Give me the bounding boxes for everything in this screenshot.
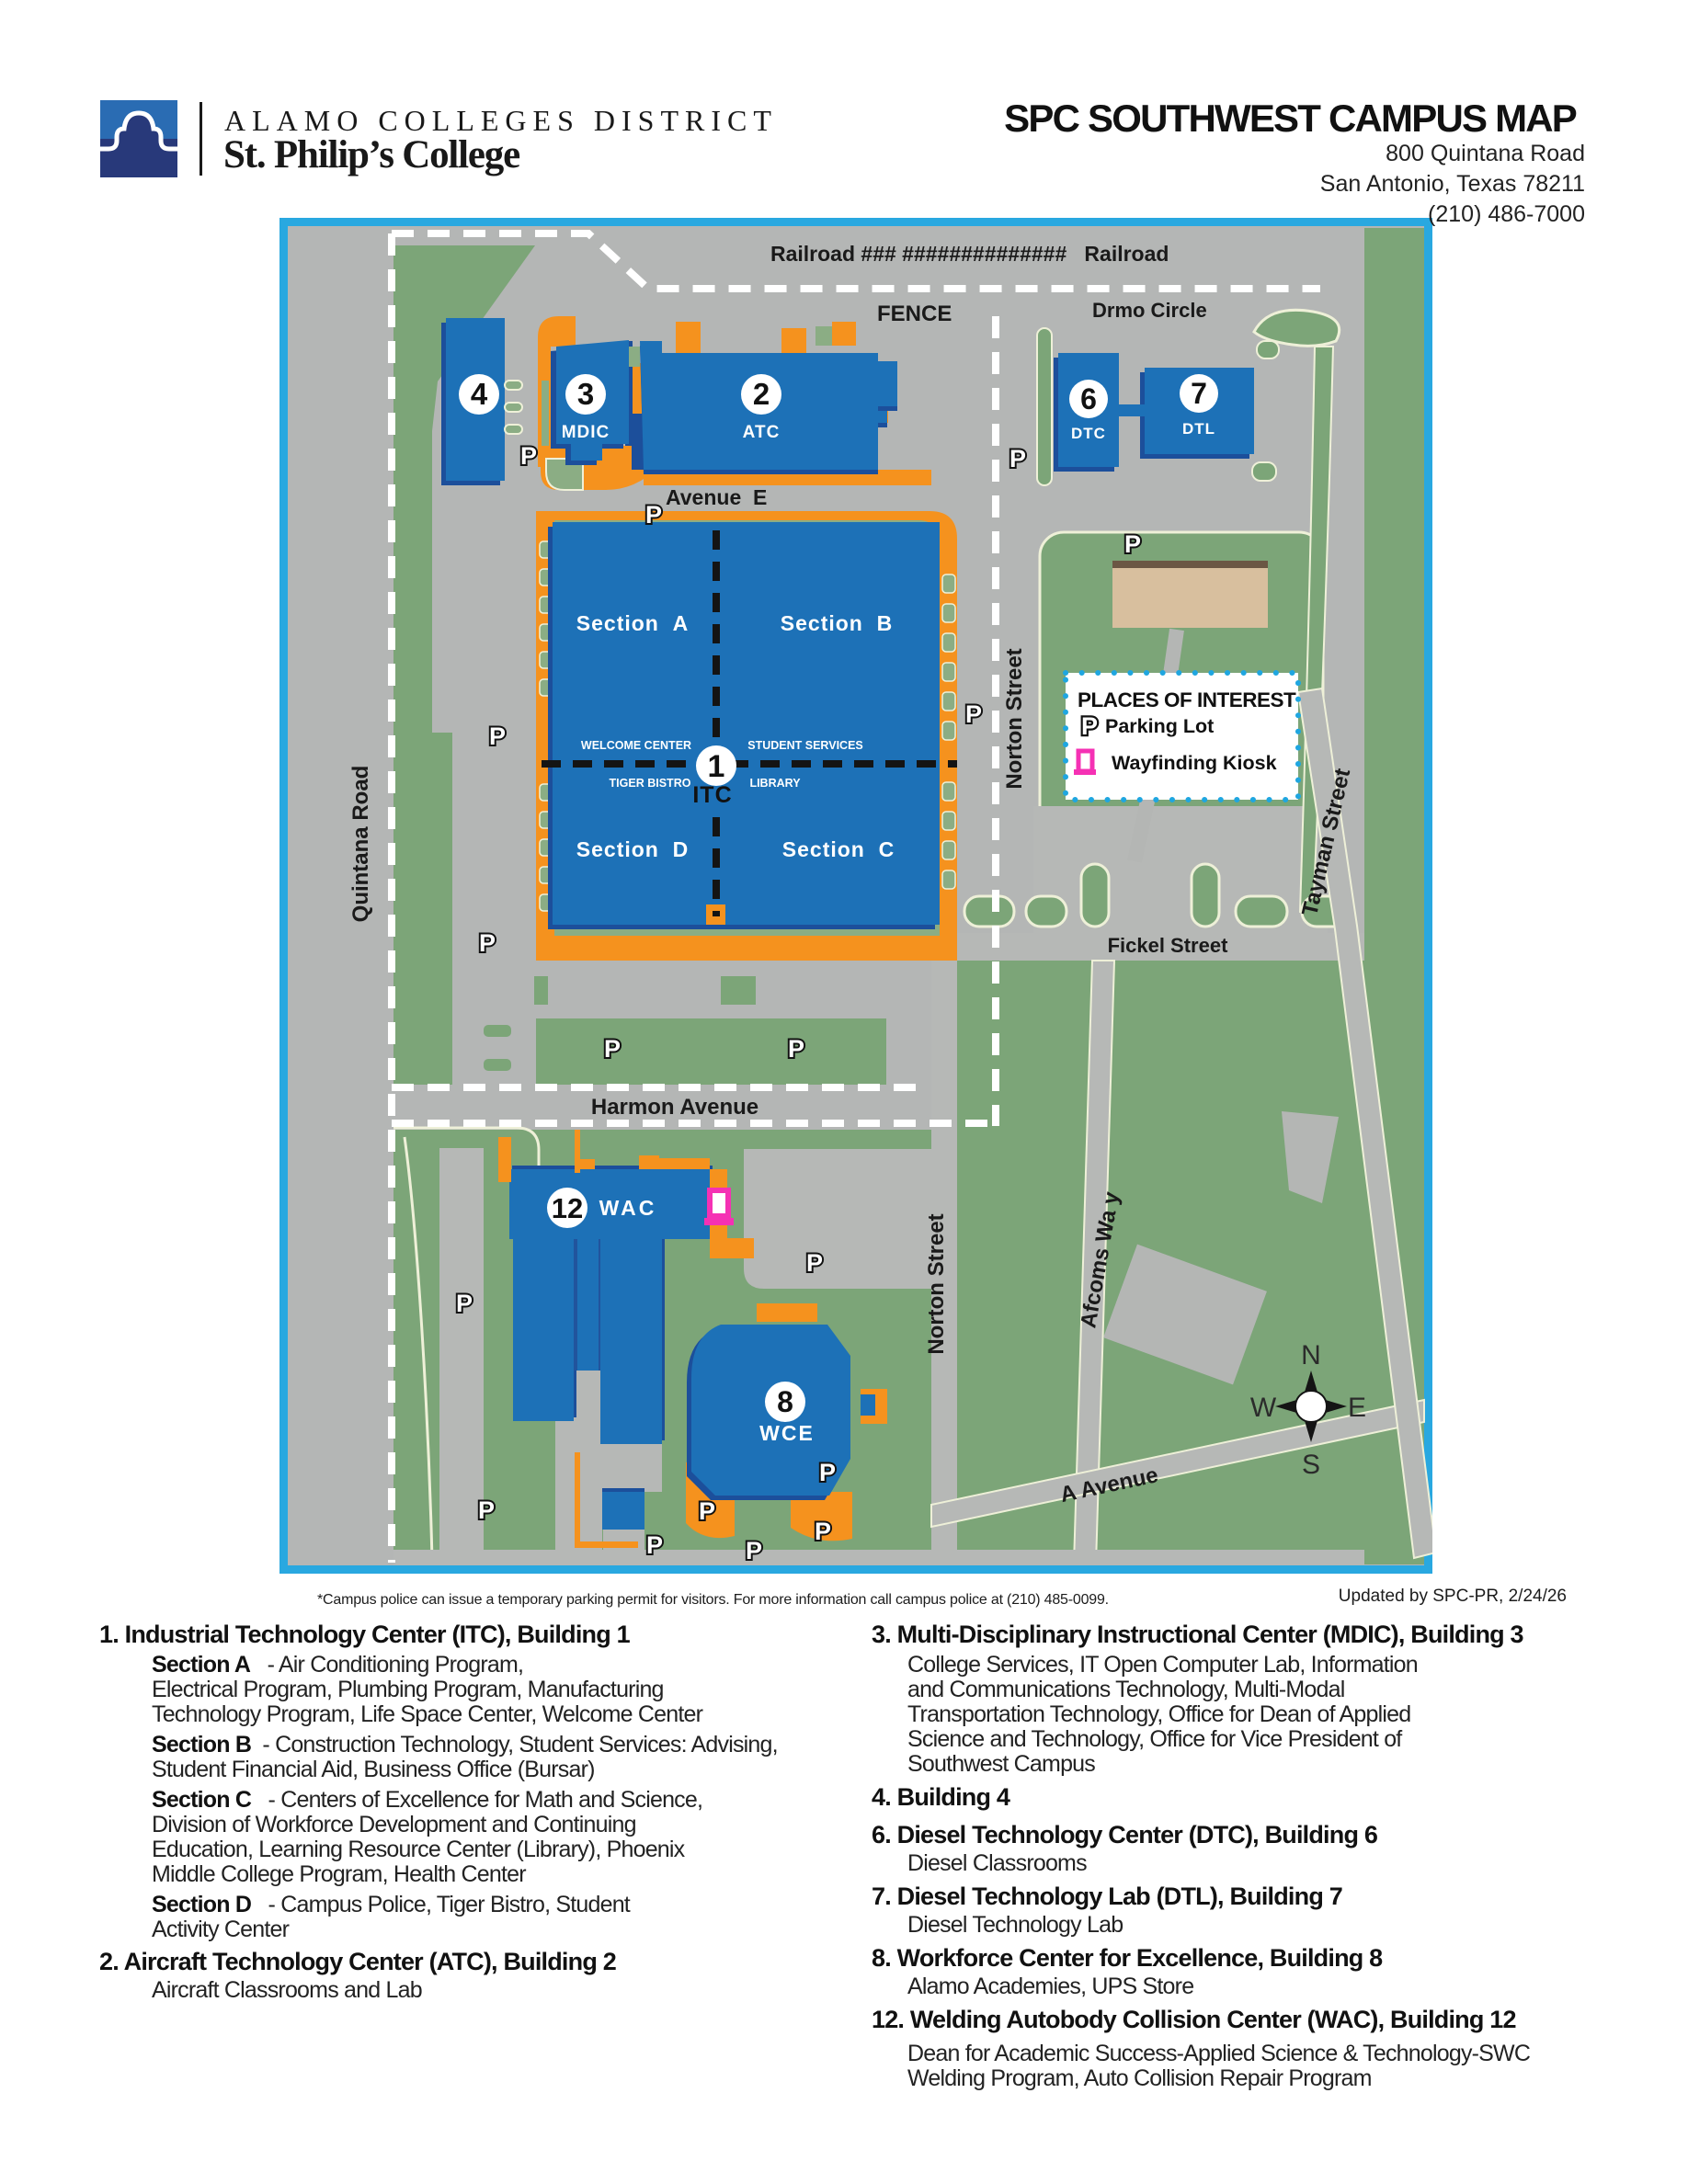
svg-text:ITC: ITC: [692, 782, 732, 808]
svg-text:Quintana Road: Quintana Road: [348, 766, 373, 923]
svg-text:WCE: WCE: [759, 1421, 815, 1445]
svg-text:P: P: [788, 1035, 804, 1063]
svg-text:Section D: Section D: [576, 837, 689, 861]
svg-text:PLACES OF INTEREST: PLACES OF INTEREST: [1078, 688, 1296, 711]
svg-text:2: 2: [753, 377, 770, 411]
svg-text:Norton Street: Norton Street: [1002, 648, 1027, 789]
svg-text:P: P: [479, 929, 496, 957]
svg-text:P: P: [1081, 712, 1098, 740]
svg-text:P: P: [604, 1035, 621, 1063]
svg-text:STUDENT SERVICES: STUDENT SERVICES: [747, 739, 863, 752]
svg-text:P: P: [1124, 530, 1141, 558]
svg-text:Wayfinding Kiosk: Wayfinding Kiosk: [1112, 752, 1277, 774]
svg-text:P: P: [489, 722, 506, 750]
svg-text:Section B: Section B: [781, 611, 893, 635]
svg-text:MDIC: MDIC: [562, 423, 610, 442]
svg-text:P: P: [965, 700, 982, 728]
svg-text:FENCE: FENCE: [877, 301, 952, 326]
svg-text:N: N: [1301, 1340, 1321, 1371]
svg-text:4: 4: [471, 377, 488, 411]
svg-text:12: 12: [552, 1192, 583, 1224]
svg-text:W: W: [1250, 1393, 1277, 1423]
svg-text:P: P: [520, 442, 537, 470]
svg-text:Harmon Avenue: Harmon Avenue: [591, 1095, 758, 1120]
svg-text:E: E: [1348, 1393, 1366, 1423]
svg-text:P: P: [699, 1497, 715, 1525]
svg-text:1: 1: [708, 749, 725, 784]
svg-text:P: P: [456, 1290, 473, 1317]
svg-text:DTC: DTC: [1071, 425, 1106, 442]
svg-text:WELCOME CENTER: WELCOME CENTER: [581, 739, 691, 752]
svg-text:Railroad ### ##############: Railroad ### ############## Railroad: [770, 242, 1169, 266]
svg-text:WAC: WAC: [599, 1196, 657, 1220]
svg-text:8: 8: [777, 1385, 793, 1418]
svg-text:3: 3: [577, 377, 594, 411]
svg-text:P: P: [815, 1518, 831, 1545]
svg-text:Norton Street: Norton Street: [924, 1213, 949, 1354]
svg-text:Section A: Section A: [576, 611, 689, 635]
svg-text:TIGER BISTRO: TIGER BISTRO: [610, 777, 691, 790]
svg-text:Parking Lot: Parking Lot: [1105, 715, 1214, 737]
svg-text:LIBRARY: LIBRARY: [749, 777, 801, 790]
svg-text:Drmo Circle: Drmo Circle: [1092, 299, 1207, 322]
svg-text:P: P: [1009, 445, 1026, 472]
svg-text:S: S: [1302, 1450, 1320, 1480]
svg-text:P: P: [478, 1496, 495, 1524]
svg-text:DTL: DTL: [1182, 420, 1215, 438]
svg-text:P: P: [746, 1537, 762, 1564]
svg-text:Fickel Street: Fickel Street: [1108, 934, 1229, 957]
svg-text:P: P: [819, 1459, 836, 1486]
svg-text:ATC: ATC: [743, 423, 781, 442]
svg-text:6: 6: [1080, 382, 1097, 415]
svg-text:Section C: Section C: [782, 837, 895, 861]
svg-text:7: 7: [1191, 377, 1207, 410]
svg-text:P: P: [806, 1249, 823, 1277]
svg-text:P: P: [646, 1531, 663, 1559]
svg-text:P: P: [645, 501, 662, 529]
svg-text:Avenue E: Avenue E: [666, 485, 767, 509]
